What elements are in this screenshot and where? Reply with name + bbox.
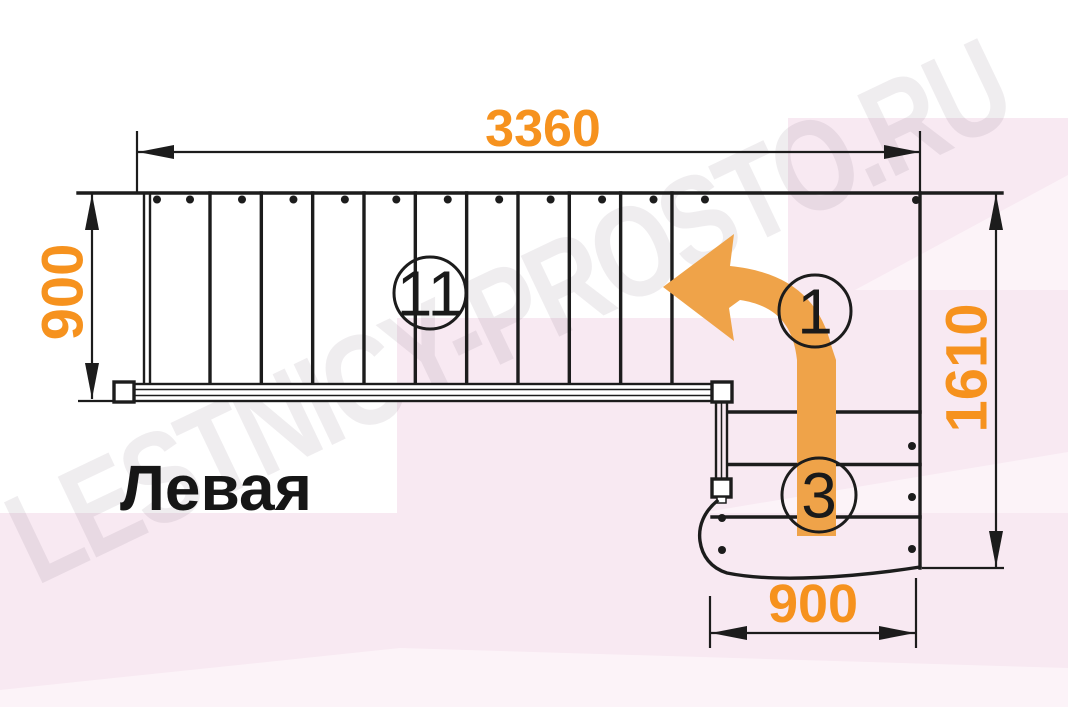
baluster-dot xyxy=(392,196,400,204)
arrowhead-up xyxy=(85,194,99,230)
baluster-dot xyxy=(186,196,194,204)
badge-value: 1 xyxy=(797,275,833,347)
stair-plan-page: LESTNICY-PROSTO.RU xyxy=(0,0,1068,707)
dimension-bottom-value: 900 xyxy=(768,574,858,634)
dimension-top-value: 3360 xyxy=(485,100,601,158)
dimension-right-value: 1610 xyxy=(934,303,999,432)
page-title: Левая xyxy=(120,452,312,524)
badge-top-flight: 11 xyxy=(394,257,466,329)
handrail-band-rect xyxy=(133,384,713,401)
stair-plan-drawing: LESTNICY-PROSTO.RU xyxy=(0,0,1068,707)
baluster-dot xyxy=(547,196,555,204)
screw-dot xyxy=(718,546,726,554)
baluster-dot xyxy=(701,196,709,204)
baluster-dot xyxy=(598,196,606,204)
badge-value: 11 xyxy=(397,257,463,329)
screw-dot xyxy=(908,442,916,450)
screw-dot xyxy=(908,493,916,501)
handrail-band xyxy=(114,382,732,402)
newel-post-bottom xyxy=(712,479,731,497)
turn-handrail xyxy=(712,402,731,503)
baluster-dot xyxy=(444,196,452,204)
baluster-dot xyxy=(495,196,503,204)
baluster-dot xyxy=(341,196,349,204)
screw-dot xyxy=(718,514,726,522)
dimension-left-value: 900 xyxy=(30,244,95,341)
baluster-dot xyxy=(153,196,161,204)
badge-value: 3 xyxy=(801,459,837,531)
screw-dot xyxy=(908,545,916,553)
baluster-dot xyxy=(238,196,246,204)
arrowhead-down xyxy=(85,363,99,399)
baluster-dot xyxy=(289,196,297,204)
newel-post-left xyxy=(114,382,134,402)
dimension-left: 900 xyxy=(30,194,114,401)
baluster-dot xyxy=(650,196,658,204)
newel-post-middle xyxy=(712,382,732,402)
arrowhead-left xyxy=(138,145,174,159)
